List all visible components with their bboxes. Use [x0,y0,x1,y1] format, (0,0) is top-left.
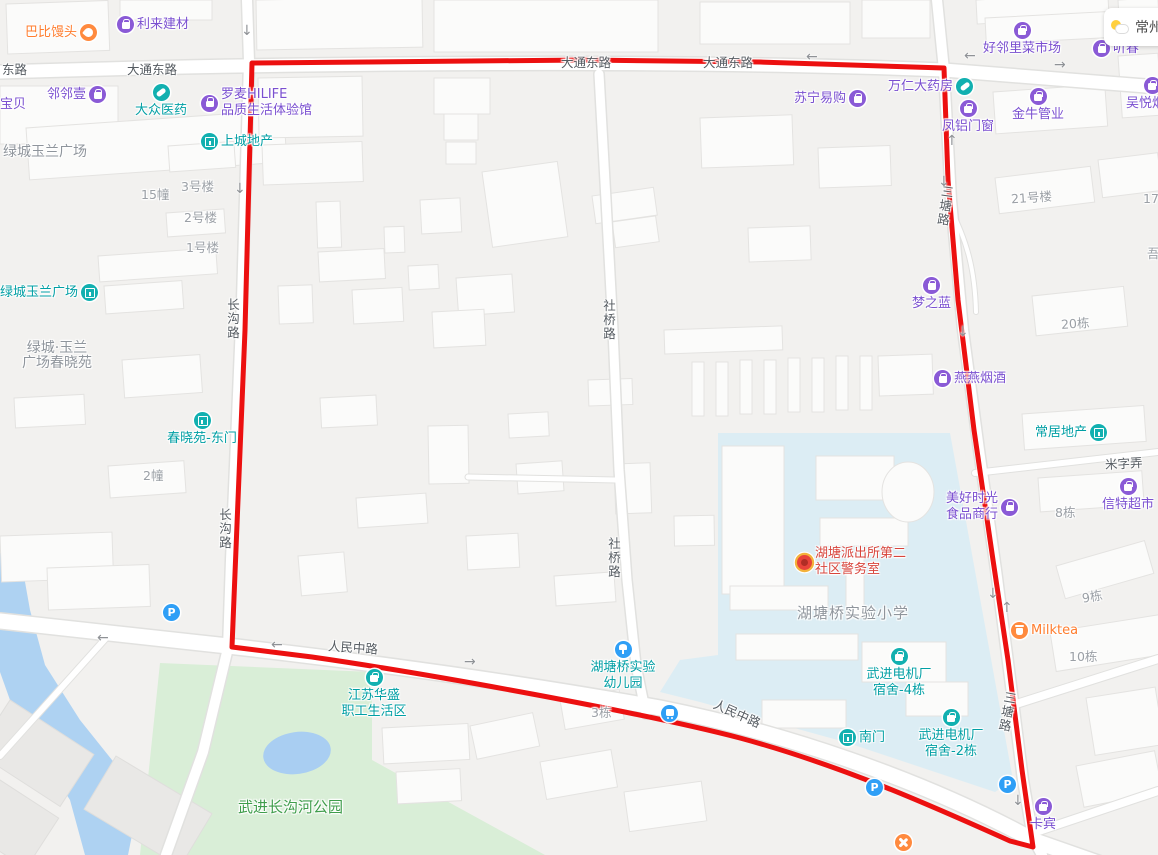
road-direction-arrow-14: → [464,655,476,669]
road-direction-arrow-13: ← [271,638,283,652]
map-canvas[interactable]: 东路大通东路大通东路大通东路人民中路人民中路米字弄长沟路长沟路社桥路社桥路三塘路… [0,0,1158,855]
road-direction-arrow-2: ↓ [234,182,246,196]
weather-widget[interactable]: 常州 [1104,8,1158,46]
road-direction-arrow-8: ↓ [957,325,969,339]
road-direction-arrow-6: ↓ [938,175,950,189]
road-direction-arrow-9: ↓ [987,587,999,601]
arrow-layer: ↓↓←←→↓↑↓↓↑↓←←→ [0,0,1158,855]
road-direction-arrow-5: → [1054,58,1066,72]
road-direction-arrow-1: ↓ [241,24,253,38]
road-direction-arrow-4: ← [964,49,976,63]
weather-city: 常州 [1135,17,1158,37]
road-direction-arrow-10: ↑ [1001,601,1013,615]
road-direction-arrow-12: ← [97,631,109,645]
road-direction-arrow-3: ← [806,50,818,64]
road-direction-arrow-11: ↓ [1012,794,1024,808]
sun-cloud-icon [1111,20,1130,35]
road-direction-arrow-7: ↑ [946,134,958,148]
